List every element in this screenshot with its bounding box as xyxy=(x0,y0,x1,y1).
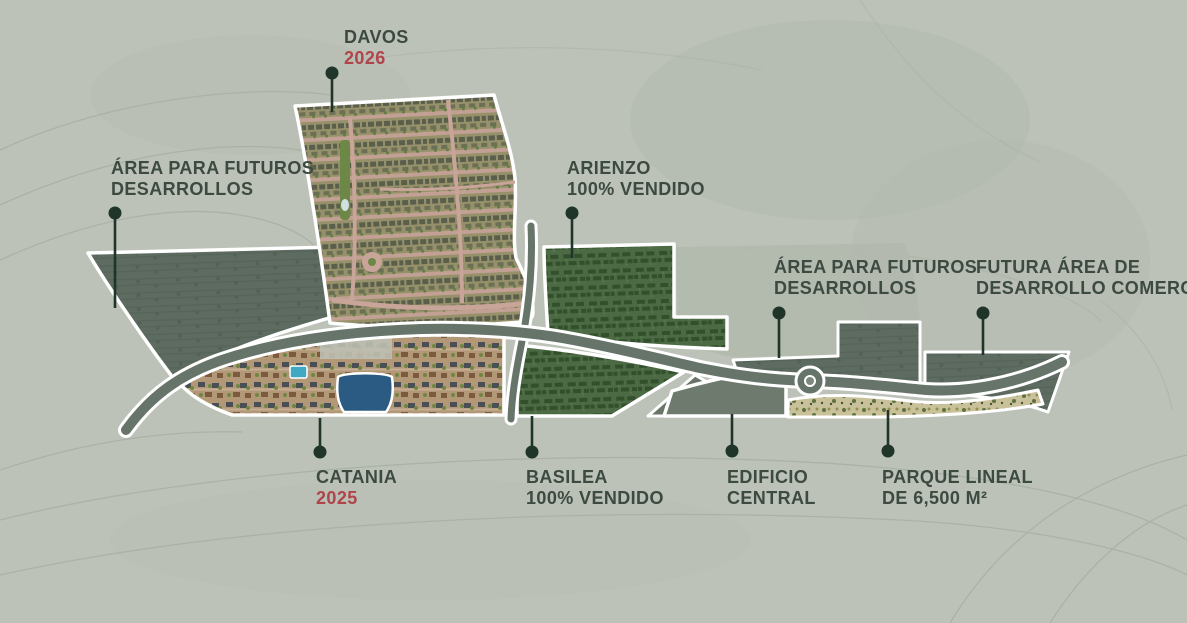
label-parque-lineal[interactable]: PARQUE LINEAL DE 6,500 M² xyxy=(882,467,1033,509)
label-edificio-central[interactable]: EDIFICIO CENTRAL xyxy=(727,467,816,509)
parcel-davos[interactable] xyxy=(295,95,533,327)
masterplan-map xyxy=(0,0,1187,623)
label-catania-name: CATANIA xyxy=(316,467,397,488)
marker-edificio xyxy=(727,414,737,456)
marker-catania xyxy=(315,418,325,457)
label-arienzo-name: ARIENZO xyxy=(567,158,705,179)
label-basilea[interactable]: BASILEA 100% VENDIDO xyxy=(526,467,664,509)
label-comercial[interactable]: FUTURA ÁREA DE DESARROLLO COMERCIAL xyxy=(976,257,1187,299)
label-catania-year: 2025 xyxy=(316,488,397,509)
label-area-futuros-right[interactable]: ÁREA PARA FUTUROS DESARROLLOS xyxy=(774,257,977,299)
label-basilea-name: BASILEA xyxy=(526,467,664,488)
label-davos[interactable]: DAVOS 2026 xyxy=(344,27,409,69)
masterplan-stage: DAVOS 2026 ÁREA PARA FUTUROS DESARROLLOS… xyxy=(0,0,1187,623)
catania-pool xyxy=(290,366,307,378)
label-area-futuros-left[interactable]: ÁREA PARA FUTUROS DESARROLLOS xyxy=(111,158,314,200)
label-arienzo[interactable]: ARIENZO 100% VENDIDO xyxy=(567,158,705,200)
catania-lagoon xyxy=(337,373,393,412)
label-davos-year: 2026 xyxy=(344,48,409,69)
label-arienzo-status: 100% VENDIDO xyxy=(567,179,705,200)
marker-basilea xyxy=(527,416,537,457)
roundabout-island xyxy=(805,376,815,386)
davos-plaza-green xyxy=(368,258,376,266)
davos-pond xyxy=(341,199,349,211)
label-catania[interactable]: CATANIA 2025 xyxy=(316,467,397,509)
label-davos-name: DAVOS xyxy=(344,27,409,48)
label-basilea-status: 100% VENDIDO xyxy=(526,488,664,509)
